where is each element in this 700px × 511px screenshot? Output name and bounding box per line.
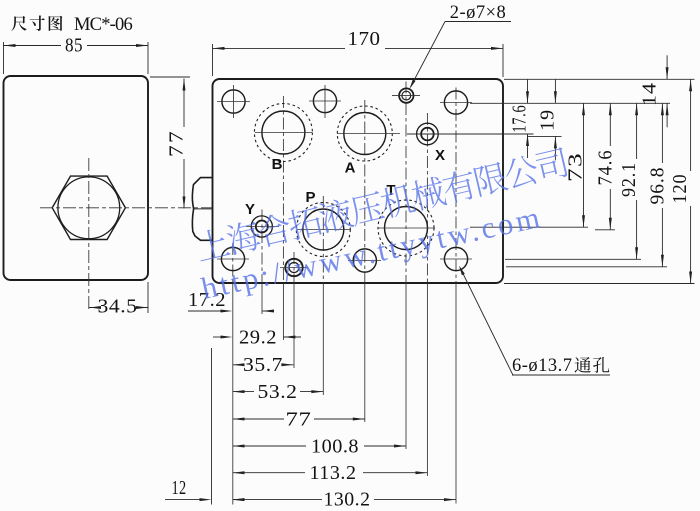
svg-text:12: 12 [172,477,187,499]
svg-text:2-ø7×8: 2-ø7×8 [450,3,507,23]
svg-text:X: X [435,147,445,164]
svg-text:170: 170 [348,28,381,50]
svg-text:29.2: 29.2 [239,327,277,349]
svg-text:6-ø13.7: 6-ø13.7 [512,356,573,376]
svg-text:17.6: 17.6 [509,105,531,133]
svg-text:74.6: 74.6 [595,150,617,186]
svg-text:77: 77 [286,409,312,431]
svg-text:A: A [345,160,356,177]
svg-text:MC*-06: MC*-06 [74,15,132,35]
svg-text:130.2: 130.2 [324,489,371,511]
svg-text:85: 85 [65,35,83,57]
svg-text:P: P [305,189,315,206]
svg-text:34.5: 34.5 [98,296,138,318]
svg-text:77: 77 [166,129,188,157]
svg-text:113.2: 113.2 [310,462,357,484]
svg-text:92.1: 92.1 [618,162,640,197]
svg-text:35.7: 35.7 [243,354,283,376]
svg-text:14: 14 [639,82,661,106]
svg-text:73: 73 [565,152,587,182]
svg-text:96.8: 96.8 [647,167,669,205]
svg-text:100.8: 100.8 [311,436,359,458]
svg-text:B: B [272,156,283,173]
svg-text:Y: Y [245,201,255,218]
svg-text:53.2: 53.2 [258,381,298,403]
svg-text:120: 120 [669,174,691,204]
svg-text:19: 19 [536,109,558,131]
